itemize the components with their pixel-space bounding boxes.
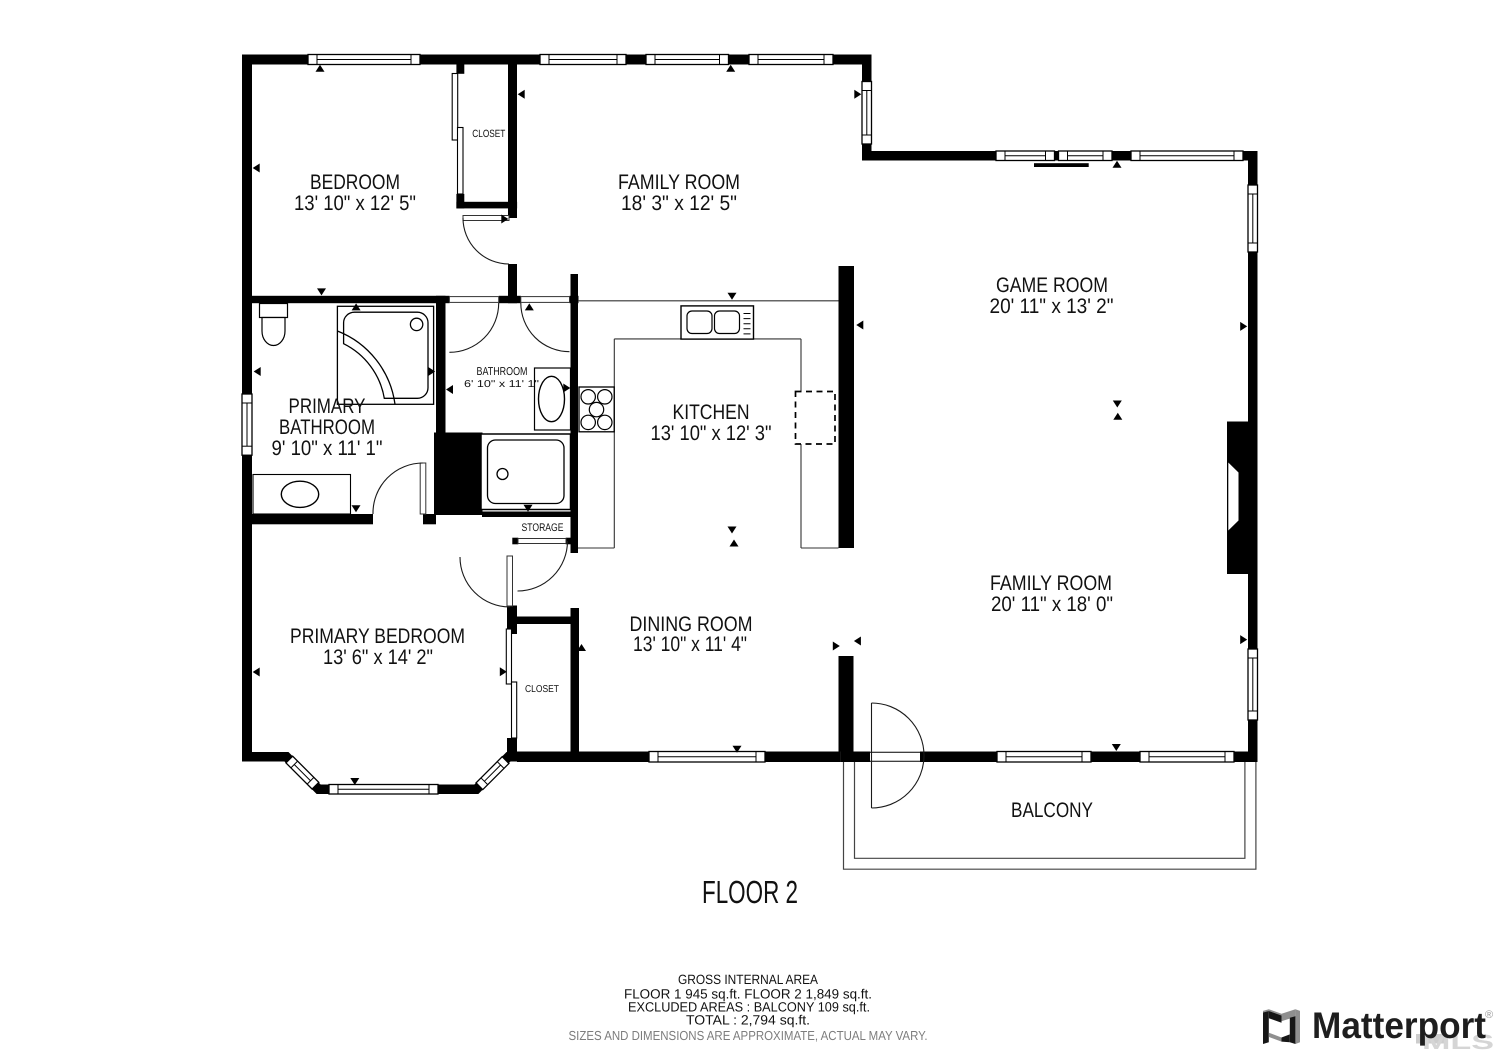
svg-text:GAME ROOM: GAME ROOM [996, 274, 1108, 297]
svg-text:18' 3" x 12' 5": 18' 3" x 12' 5" [621, 192, 737, 215]
svg-text:20' 11" x 18' 0": 20' 11" x 18' 0" [991, 593, 1113, 616]
svg-text:CLOSET: CLOSET [525, 684, 559, 695]
svg-text:STORAGE: STORAGE [522, 522, 564, 534]
svg-text:FAMILY ROOM: FAMILY ROOM [990, 572, 1112, 595]
svg-text:13' 6" x 14' 2": 13' 6" x 14' 2" [323, 646, 433, 669]
svg-text:9' 10" x 11' 1": 9' 10" x 11' 1" [272, 437, 383, 460]
svg-text:BALCONY: BALCONY [1011, 799, 1093, 822]
svg-text:TOTAL : 2,794 sq.ft.: TOTAL : 2,794 sq.ft. [686, 1013, 810, 1028]
svg-text:SIZES AND DIMENSIONS ARE APPRO: SIZES AND DIMENSIONS ARE APPROXIMATE, AC… [569, 1028, 928, 1043]
svg-text:PRIMARY BEDROOM: PRIMARY BEDROOM [290, 625, 465, 648]
svg-text:20' 11" x 13' 2": 20' 11" x 13' 2" [990, 295, 1114, 318]
svg-text:13' 10" x 12' 5": 13' 10" x 12' 5" [294, 192, 416, 215]
svg-text:PRIMARY: PRIMARY [289, 395, 366, 418]
svg-text:6' 10" x 11' 1": 6' 10" x 11' 1" [464, 379, 540, 390]
svg-text:Matterport: Matterport [1312, 1005, 1486, 1046]
svg-text:BEDROOM: BEDROOM [310, 171, 400, 194]
svg-text:FAMILY ROOM: FAMILY ROOM [618, 171, 740, 194]
svg-text:®: ® [1485, 1009, 1493, 1021]
svg-text:CLOSET: CLOSET [472, 128, 505, 140]
svg-text:BATHROOM: BATHROOM [477, 366, 528, 378]
svg-text:GROSS INTERNAL AREA: GROSS INTERNAL AREA [678, 972, 818, 987]
svg-text:13' 10" x 12' 3": 13' 10" x 12' 3" [651, 422, 772, 445]
svg-text:13' 10" x 11' 4": 13' 10" x 11' 4" [633, 633, 747, 656]
svg-text:BATHROOM: BATHROOM [279, 416, 375, 439]
svg-text:FLOOR 2: FLOOR 2 [702, 874, 798, 910]
svg-text:KITCHEN: KITCHEN [673, 401, 750, 424]
